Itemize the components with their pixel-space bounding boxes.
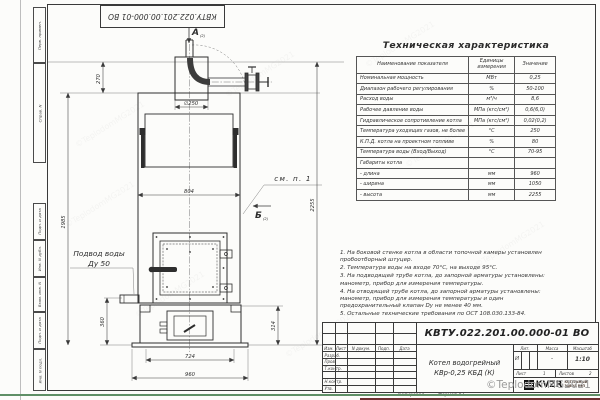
spec-row: Расход водым³/ч8,6 <box>357 94 556 105</box>
product-name-line1: Котел водогрейный <box>429 359 500 367</box>
stamp-designation: КВТУ.022.201.00.000-01 ВО <box>416 323 598 344</box>
dim-724-label: 724 <box>185 354 195 360</box>
spec-row: Температура воды (Вход/Выход)°С70-95 <box>357 147 556 158</box>
stamp-mass-label: Масса <box>537 346 567 351</box>
upper-hatch <box>140 114 239 168</box>
stamp-sheets-value: 2 <box>589 371 592 376</box>
dim-960-label: 960 <box>185 372 196 378</box>
spec-cell: МПа (кгс/см²) <box>469 115 515 126</box>
spec-cell: 50-100 <box>515 84 556 95</box>
water-inlet-label-2: Ду 50 <box>87 259 110 268</box>
stamp-scale-value: 1:10 <box>567 356 598 363</box>
spec-cell: - высота <box>357 190 469 201</box>
dim-270-label: 270 <box>96 73 102 84</box>
spec-cell: °С <box>469 126 515 137</box>
spec-cell: 80 <box>515 137 556 148</box>
spec-row: Номинальная мощностьМВт0,25 <box>357 73 556 84</box>
note-5: 5. Остальные технические требования по О… <box>340 311 556 318</box>
top-designation-box: КВТУ.022.201.00.000-01 ВО <box>100 5 225 28</box>
view-a-ref: (2) <box>200 34 206 38</box>
watermark-text: ©TeplodomMG2021 <box>486 379 591 391</box>
flue-elbow-valve <box>190 58 268 91</box>
spec-cell: Гидравлическое сопротивление котла <box>357 115 469 126</box>
spec-row: - ширинамм1050 <box>357 179 556 190</box>
spec-header-name: Наименование показателя <box>357 57 469 74</box>
spec-cell: Рабочее давление воды <box>357 105 469 116</box>
dim-314-label: 314 <box>271 321 277 331</box>
stamp-scale-label: Масштаб <box>567 346 598 351</box>
view-b-ref: (2) <box>263 217 269 221</box>
door-hinge-bottom <box>220 284 232 292</box>
stamp-mass-value: - <box>537 356 567 362</box>
spec-row: Габариты котла <box>357 158 556 169</box>
note-3: 3. На подводящей трубе котла, до запорно… <box>340 273 556 287</box>
spec-cell: 960 <box>515 168 556 179</box>
spec-cell: Температура воды (Вход/Выход) <box>357 147 469 158</box>
furnace-door <box>149 233 232 303</box>
spec-table-title: Техническая характеристика <box>352 40 580 51</box>
stamp-row-razrab: Разраб. <box>325 353 341 358</box>
spec-cell: % <box>469 84 515 95</box>
bottom-green-bar <box>0 394 600 396</box>
spec-cell: МВт <box>469 73 515 84</box>
water-inlet-stub <box>120 295 139 303</box>
product-name-line2: КВр-0,25 КБД (К) <box>434 369 495 377</box>
spec-row: К.П.Д. котла на проектном топливе%80 <box>357 137 556 148</box>
stamp-col-ndoc: N докум. <box>347 346 375 351</box>
spec-header-value: Значение <box>515 57 556 74</box>
stamp-lit-value: И <box>513 356 521 362</box>
spec-cell: К.П.Д. котла на проектном топливе <box>357 137 469 148</box>
spec-cell: % <box>469 137 515 148</box>
spec-cell: Габариты котла <box>357 158 469 169</box>
dim-d250-label: ∅250 <box>184 101 199 107</box>
spec-cell: 1050 <box>515 179 556 190</box>
note-2: 2. Температура воды на входе 70°С, на вы… <box>340 265 556 272</box>
stamp-col-data: Дата <box>393 346 416 351</box>
spec-cell: 8,6 <box>515 94 556 105</box>
extension-lines <box>48 62 344 381</box>
stamp-row-nkontr: Н.контр. <box>325 379 343 384</box>
spec-cell: Диапазон рабочего регулирования <box>357 84 469 95</box>
spec-cell <box>469 158 515 169</box>
spec-row: Гидравлическое сопротивление котлаМПа (к… <box>357 115 556 126</box>
spec-cell: мм <box>469 190 515 201</box>
view-a-mark: А <box>191 28 199 38</box>
spec-header-row: Наименование показателя Единицы измерени… <box>357 57 556 74</box>
stamp-col-podp: Подп. <box>375 346 393 351</box>
door-hinge-top <box>220 250 232 258</box>
spec-table: Наименование показателя Единицы измерени… <box>356 56 556 201</box>
stamp-row-prov: Пров. <box>325 359 337 364</box>
spec-cell: мм <box>469 168 515 179</box>
water-inlet-label-1: Подвод воды <box>73 249 125 258</box>
stamp-sheet-label: Лист <box>516 371 526 376</box>
spec-cell: Расход воды <box>357 94 469 105</box>
spec-row: Рабочее давление водыМПа (кгс/см²)0,6(6,… <box>357 105 556 116</box>
spec-cell: мм <box>469 179 515 190</box>
spec-cell: 2255 <box>515 190 556 201</box>
stamp-row-utv: Утв. <box>325 386 333 391</box>
note-4: 4. На отводящей трубе котла, до запорной… <box>340 289 556 310</box>
note-1: 1. На боковой стенке котла в области топ… <box>340 250 556 264</box>
stamp-lit-label: Лит. <box>513 346 537 351</box>
dim-804-label: 804 <box>184 189 194 195</box>
spec-cell <box>515 158 556 169</box>
stamp-row-tkontr: Т.контр. <box>325 366 342 371</box>
stamp-col-list: Лист <box>335 346 347 351</box>
ash-door-base <box>140 305 241 340</box>
stamp-sheet-value: 1 <box>543 371 546 376</box>
view-b-mark: Б <box>255 211 262 221</box>
stamp-sheets-label: Листов <box>559 371 574 376</box>
spec-cell: Номинальная мощность <box>357 73 469 84</box>
spec-cell: 0,25 <box>515 73 556 84</box>
spec-cell: м³/ч <box>469 94 515 105</box>
callout-see-note: см. п. 1 <box>274 174 311 183</box>
spec-cell: 250 <box>515 126 556 137</box>
spec-cell: 0,6(6,0) <box>515 105 556 116</box>
spec-cell: °С <box>469 147 515 158</box>
dim-1985-label: 1985 <box>61 215 67 229</box>
spec-cell: - ширина <box>357 179 469 190</box>
stamp-col-izm: Изм. <box>323 346 335 351</box>
spec-row: - высотамм2255 <box>357 190 556 201</box>
dim-360-label: 360 <box>100 316 106 327</box>
spec-header-units: Единицы измерения <box>469 57 515 74</box>
spec-cell: - длина <box>357 168 469 179</box>
spec-cell: Температура уходящих газов, не более <box>357 126 469 137</box>
top-designation-text: КВТУ.022.201.00.000-01 ВО <box>108 12 217 21</box>
spec-row: - длинамм960 <box>357 168 556 179</box>
spec-cell: 70-95 <box>515 147 556 158</box>
spec-row: Температура уходящих газов, не более°С25… <box>357 126 556 137</box>
spec-cell: МПа (кгс/см²) <box>469 105 515 116</box>
spec-cell: 0,02(0,2) <box>515 115 556 126</box>
technical-notes: 1. На боковой стенке котла в области топ… <box>340 250 556 319</box>
dim-2255-label: 2255 <box>310 198 316 212</box>
drawing-sheet: ∅250 270 804 1985 2255 360 314 724 960 А… <box>0 0 600 400</box>
spec-row: Диапазон рабочего регулирования%50-100 <box>357 84 556 95</box>
